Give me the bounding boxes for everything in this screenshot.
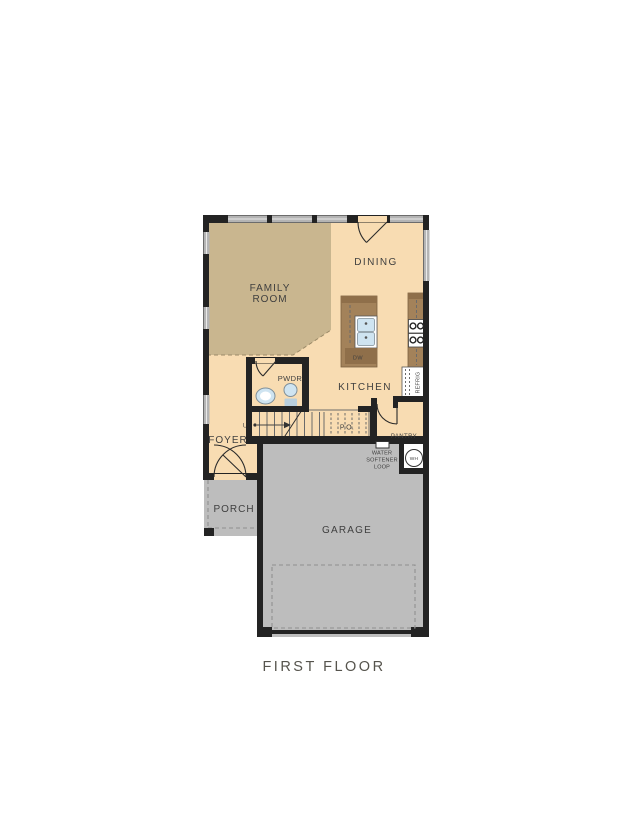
porch-post [204, 528, 214, 536]
porch-label: PORCH [213, 504, 254, 515]
dining-label: DINING [354, 257, 397, 268]
floorplan-page: DW REFRIG UP [0, 0, 639, 828]
front-door-opening [214, 474, 246, 480]
island-end-cap [341, 296, 377, 303]
toilet-bowl [260, 392, 271, 401]
right-counter-cap [408, 293, 425, 299]
burner [418, 337, 424, 343]
pantry-label: PANTRY [391, 434, 417, 440]
water-softener-label-line1: WATER [372, 451, 392, 457]
sink-icon [284, 384, 297, 397]
water-softener-label-line2: SOFTENER [366, 458, 398, 464]
sink-drain-bottom [365, 336, 368, 339]
sink-drain-top [365, 322, 368, 325]
burner [410, 323, 416, 329]
burner [410, 337, 416, 343]
pwdr-label: PWDR [278, 374, 303, 383]
water-heater-label: WH [410, 456, 419, 462]
refrigerator-label: REFRIG [416, 372, 422, 394]
sink-basin-bottom [358, 333, 375, 346]
pocket-office-label: P.O. [340, 425, 354, 432]
page-title: FIRST FLOOR [262, 659, 385, 675]
garage-label: GARAGE [322, 525, 372, 536]
kitchen-label: KITCHEN [338, 382, 392, 393]
floorplan-drawing: DW REFRIG UP [0, 0, 639, 828]
family-room-label-line1: FAMILY [250, 283, 291, 294]
foyer-label: FOYER [208, 435, 247, 446]
dining-door-opening [358, 216, 387, 223]
sink-basin-top [358, 319, 375, 332]
water-softener-label-line3: LOOP [374, 465, 390, 471]
burner [418, 323, 424, 329]
up-arrow-origin [253, 423, 256, 426]
sink-pedestal [285, 399, 298, 407]
pwdr-door-opening [255, 358, 275, 364]
dishwasher-label: DW [353, 356, 363, 362]
family-room-label-line2: ROOM [252, 294, 287, 305]
floors [203, 215, 429, 637]
water-softener-loop-symbol [376, 442, 389, 449]
